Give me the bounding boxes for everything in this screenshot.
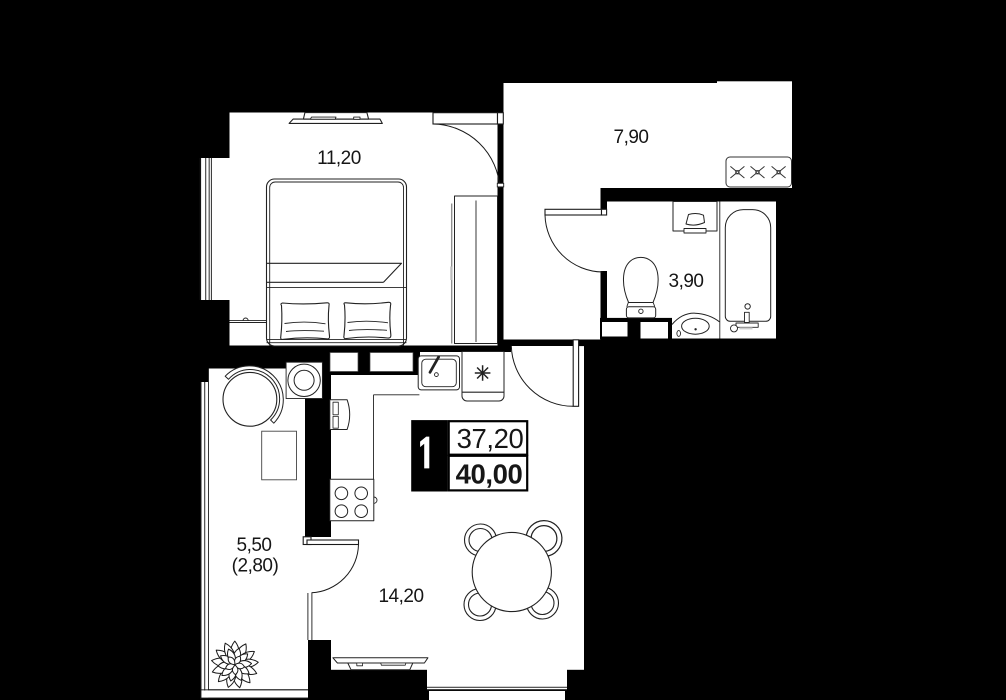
svg-text:(2,80): (2,80) [232,556,279,577]
svg-text:5,50: 5,50 [237,535,272,556]
svg-text:7,90: 7,90 [614,127,649,148]
svg-text:14,20: 14,20 [378,586,423,607]
svg-text:37,20: 37,20 [457,423,524,454]
svg-text:40,00: 40,00 [456,459,523,490]
svg-text:11,20: 11,20 [317,148,361,169]
svg-text:3,90: 3,90 [669,271,704,292]
